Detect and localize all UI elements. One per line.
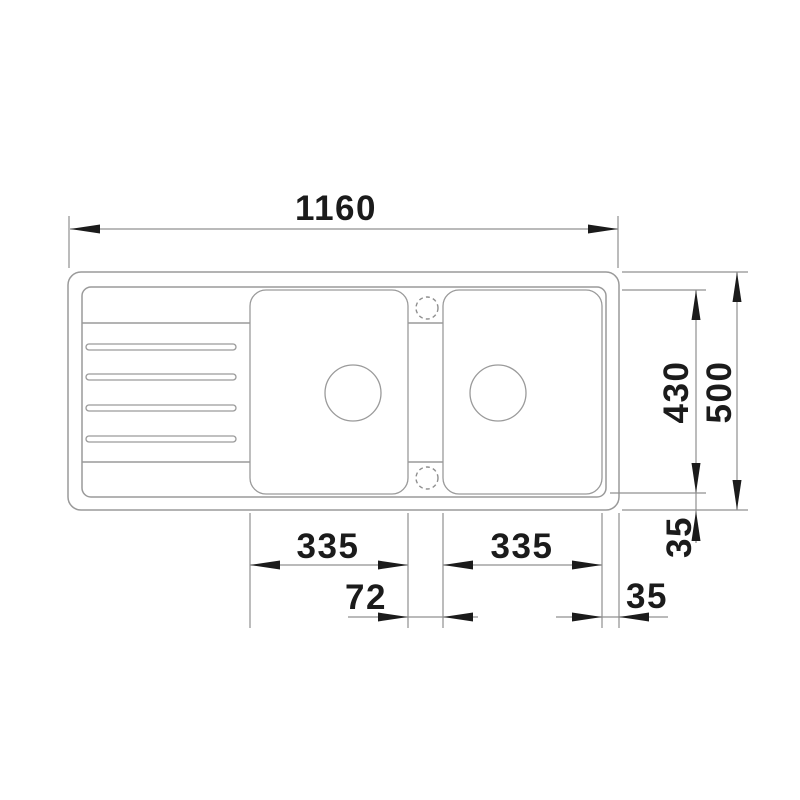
drainer-groove xyxy=(86,405,236,411)
dimension-right-bowl-width: 335 xyxy=(443,527,602,570)
arrow-up xyxy=(733,272,742,302)
arrow-left xyxy=(250,561,280,570)
dimension-left-bowl-width: 335 xyxy=(250,527,408,570)
right-drain-hole xyxy=(470,365,526,421)
arrow-left xyxy=(443,561,473,570)
drainer-grooves xyxy=(86,344,236,442)
dim-label-overall-depth: 500 xyxy=(700,361,739,424)
dimension-rim-offset-bottom: 35 xyxy=(660,493,701,558)
dim-label-inner-depth: 430 xyxy=(657,361,696,424)
dim-label-bowl-gap: 72 xyxy=(345,578,387,617)
arrow-right xyxy=(378,561,408,570)
drainer-groove xyxy=(86,374,236,380)
dimension-inner-depth: 430 xyxy=(610,290,706,493)
sink-body xyxy=(68,272,619,510)
dim-label-overall-width: 1160 xyxy=(295,189,377,228)
arrow-right xyxy=(572,561,602,570)
arrow-up xyxy=(692,290,701,320)
tap-hole-bottom xyxy=(416,467,438,489)
tap-hole-top xyxy=(416,297,438,319)
dim-label-right-bowl-width: 335 xyxy=(491,527,554,566)
arrow-left xyxy=(70,225,100,234)
dimension-bowl-gap: 72 xyxy=(345,578,478,622)
arrow-right xyxy=(588,225,618,234)
dim-label-rim-offset-right: 35 xyxy=(626,577,668,616)
left-drain-hole xyxy=(325,365,381,421)
technical-drawing: 1160 430 500 35 335 xyxy=(0,0,800,800)
drainer-groove xyxy=(86,436,236,442)
dim-label-rim-offset-bottom: 35 xyxy=(660,516,699,558)
dim-label-left-bowl-width: 335 xyxy=(297,527,360,566)
arrow-right xyxy=(572,613,602,622)
screenshot-canvas: 1160 430 500 35 335 xyxy=(0,0,800,800)
arrow-left xyxy=(443,613,473,622)
drainer-groove xyxy=(86,344,236,350)
dimension-rim-offset-right: 35 xyxy=(556,577,668,622)
arrow-down xyxy=(692,463,701,493)
arrow-down xyxy=(733,480,742,510)
dimension-overall-width: 1160 xyxy=(69,189,618,268)
